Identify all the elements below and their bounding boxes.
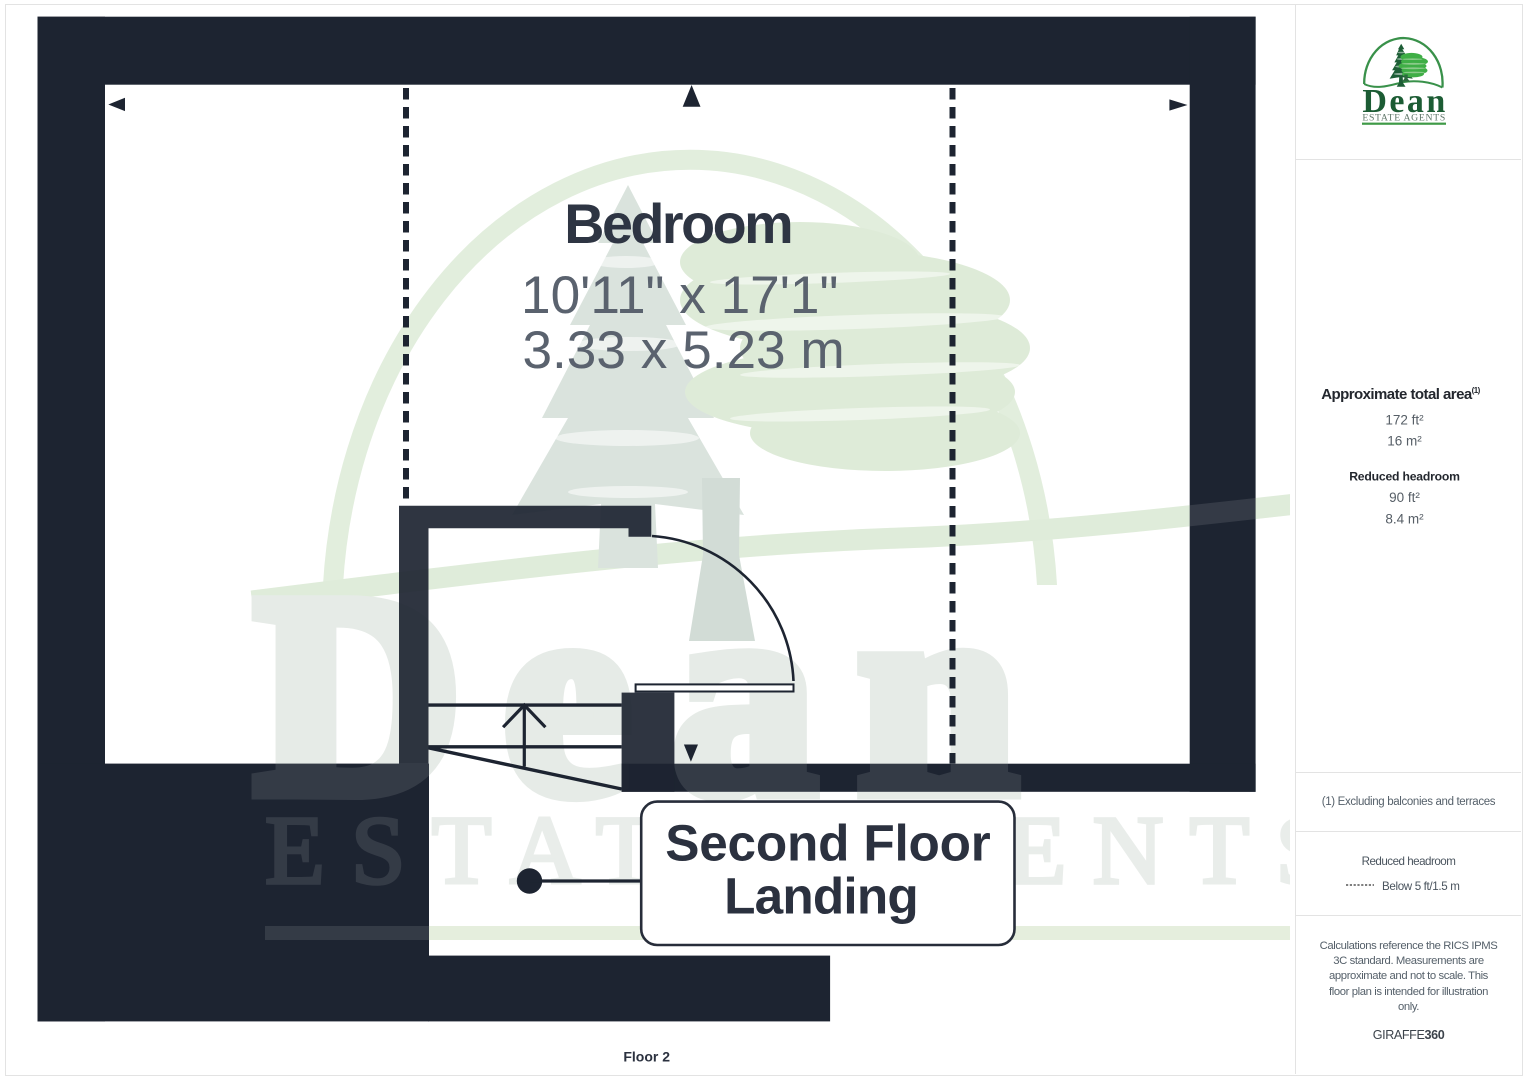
svg-text:ESTATE AGENTS: ESTATE AGENTS [1362, 112, 1445, 123]
svg-text:Approximate total area(1): Approximate total area(1) [1321, 386, 1480, 403]
svg-text:172 ft²: 172 ft² [1385, 412, 1424, 427]
svg-text:8.4 m²: 8.4 m² [1385, 512, 1424, 527]
svg-text:Reduced headroom: Reduced headroom [1349, 469, 1460, 483]
svg-text:16 m²: 16 m² [1387, 434, 1422, 449]
svg-text:90 ft²: 90 ft² [1389, 490, 1420, 505]
